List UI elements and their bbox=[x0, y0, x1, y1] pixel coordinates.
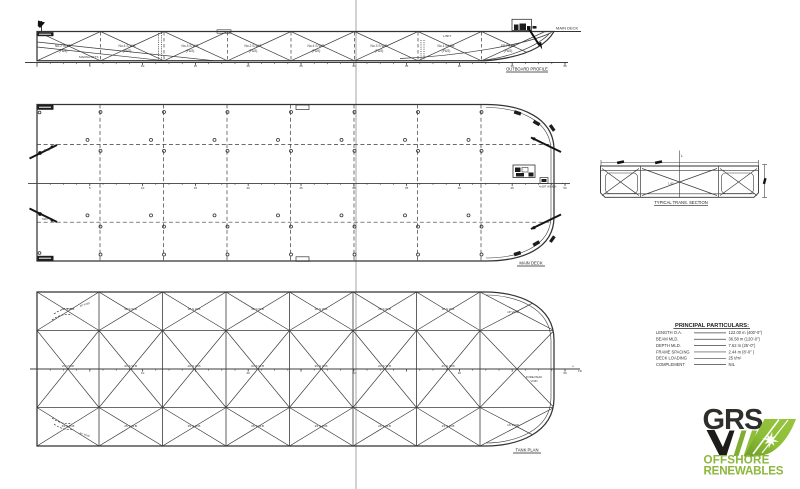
svg-text:2S S.W.B: 2S S.W.B bbox=[378, 424, 391, 428]
svg-text:2P S.W.B: 2P S.W.B bbox=[378, 307, 391, 311]
svg-text:COMPLEMENT: COMPLEMENT bbox=[656, 362, 685, 367]
svg-text:SMIT: SMIT bbox=[42, 217, 49, 221]
svg-text:1S VOID: 1S VOID bbox=[507, 423, 520, 427]
svg-text:No.2 VOID: No.2 VOID bbox=[55, 44, 72, 48]
svg-text:40: 40 bbox=[458, 371, 462, 375]
svg-text:20: 20 bbox=[247, 371, 251, 375]
svg-text:DECK LOADING: DECK LOADING bbox=[656, 356, 687, 361]
svg-text:(P&S): (P&S) bbox=[442, 49, 451, 53]
svg-text:MAIN DECK: MAIN DECK bbox=[519, 261, 542, 266]
svg-text:(P&S): (P&S) bbox=[123, 49, 132, 53]
svg-text:1.83: 1.83 bbox=[668, 182, 674, 186]
svg-text:36.58 m (120'-0"): 36.58 m (120'-0") bbox=[729, 337, 761, 342]
svg-text:1P S.W.B: 1P S.W.B bbox=[442, 307, 455, 311]
svg-text:3P S.W.B: 3P S.W.B bbox=[251, 307, 264, 311]
svg-text:3C S.W.B: 3C S.W.B bbox=[314, 364, 327, 368]
svg-text:DEPTH MLD.: DEPTH MLD. bbox=[656, 343, 681, 348]
svg-text:20: 20 bbox=[247, 186, 251, 190]
svg-text:45: 45 bbox=[511, 186, 515, 190]
svg-text:SMIT: SMIT bbox=[44, 148, 51, 152]
svg-text:7.62 m (25'-0"): 7.62 m (25'-0") bbox=[729, 343, 756, 348]
svg-text:15: 15 bbox=[194, 64, 198, 68]
svg-text:(P&S): (P&S) bbox=[375, 49, 384, 53]
svg-text:L: L bbox=[681, 154, 683, 158]
svg-text:No.3 S.W.B: No.3 S.W.B bbox=[370, 44, 388, 48]
svg-text:4C S.W.B: 4C S.W.B bbox=[124, 364, 137, 368]
svg-text:No.1 S.W.B: No.1 S.W.B bbox=[437, 44, 455, 48]
svg-text:25: 25 bbox=[299, 186, 303, 190]
svg-text:122.00 m (400'-0"): 122.00 m (400'-0") bbox=[729, 330, 763, 335]
svg-text:30: 30 bbox=[352, 64, 356, 68]
svg-text:MARSH BKTS: MARSH BKTS bbox=[79, 55, 99, 59]
svg-text:1S S.W.B: 1S S.W.B bbox=[442, 424, 455, 428]
svg-text:FRAME SPACING: FRAME SPACING bbox=[656, 349, 690, 354]
svg-text:3C S.W.B: 3C S.W.B bbox=[251, 364, 264, 368]
svg-text:35: 35 bbox=[405, 64, 409, 68]
svg-text:TANK PLAN: TANK PLAN bbox=[516, 448, 539, 453]
svg-text:(P&S): (P&S) bbox=[249, 49, 258, 53]
svg-text:4x28T WINCH: 4x28T WINCH bbox=[539, 185, 556, 189]
svg-text:20: 20 bbox=[247, 64, 251, 68]
svg-text:FR PEAK: FR PEAK bbox=[501, 44, 516, 48]
svg-text:4S S.W.B: 4S S.W.B bbox=[62, 424, 75, 428]
svg-text:3S S.W.B: 3S S.W.B bbox=[251, 424, 264, 428]
svg-text:2C S.W.B: 2C S.W.B bbox=[378, 364, 391, 368]
svg-text:25 t/m²: 25 t/m² bbox=[729, 356, 742, 361]
svg-text:(P&S): (P&S) bbox=[186, 49, 195, 53]
svg-text:1P VOID: 1P VOID bbox=[507, 310, 520, 314]
svg-text:No.4 S.W.B: No.4 S.W.B bbox=[118, 44, 136, 48]
svg-text:10: 10 bbox=[141, 371, 145, 375]
svg-text:RENEWABLES: RENEWABLES bbox=[704, 465, 784, 478]
svg-text:2P S.W.B: 2P S.W.B bbox=[315, 307, 328, 311]
svg-text:10: 10 bbox=[141, 64, 145, 68]
svg-text:30: 30 bbox=[352, 371, 356, 375]
svg-text:(P&S): (P&S) bbox=[59, 49, 68, 53]
svg-text:OUTBOARD PROFILE: OUTBOARD PROFILE bbox=[506, 67, 548, 72]
svg-text:No.3 S.W.B: No.3 S.W.B bbox=[181, 44, 199, 48]
svg-text:2S S.W.B: 2S S.W.B bbox=[315, 424, 328, 428]
svg-text:NIL: NIL bbox=[729, 362, 736, 367]
svg-text:LENGTH O.A.: LENGTH O.A. bbox=[656, 330, 682, 335]
svg-text:(P&S): (P&S) bbox=[312, 49, 321, 53]
svg-text:30: 30 bbox=[352, 186, 356, 190]
svg-text:50: 50 bbox=[563, 186, 567, 190]
svg-text:2.44 m (8'-0" ): 2.44 m (8'-0" ) bbox=[729, 349, 755, 354]
svg-text:PRINCIPAL PARTICULARS:: PRINCIPAL PARTICULARS: bbox=[675, 323, 749, 329]
svg-text:4S S.W.B: 4S S.W.B bbox=[124, 424, 137, 428]
svg-text:4C S.W.B: 4C S.W.B bbox=[187, 364, 200, 368]
svg-text:3P S.W.B: 3P S.W.B bbox=[188, 307, 201, 311]
svg-text:40: 40 bbox=[458, 64, 462, 68]
svg-text:40: 40 bbox=[458, 186, 462, 190]
svg-text:L.BKT: L.BKT bbox=[443, 34, 452, 38]
svg-text:35: 35 bbox=[405, 186, 409, 190]
svg-text:No.4 S.W.B: No.4 S.W.B bbox=[307, 44, 325, 48]
svg-text:3S S.W.B: 3S S.W.B bbox=[188, 424, 201, 428]
svg-text:2C S.W.B: 2C S.W.B bbox=[441, 364, 454, 368]
svg-text:MAIN DECK: MAIN DECK bbox=[556, 26, 579, 31]
svg-text:FR: FR bbox=[578, 369, 582, 373]
svg-text:BEAM MLD.: BEAM MLD. bbox=[656, 337, 679, 342]
svg-text:No.2 S.W.B: No.2 S.W.B bbox=[244, 44, 262, 48]
svg-text:4P S.W.B: 4P S.W.B bbox=[124, 307, 137, 311]
svg-text:50: 50 bbox=[563, 371, 567, 375]
svg-text:50: 50 bbox=[563, 64, 567, 68]
svg-text:VOID: VOID bbox=[530, 379, 537, 383]
svg-text:+: + bbox=[562, 181, 564, 185]
svg-text:10: 10 bbox=[141, 186, 145, 190]
svg-text:+: + bbox=[572, 365, 574, 369]
svg-text:25: 25 bbox=[299, 64, 303, 68]
svg-text:(P&S): (P&S) bbox=[504, 49, 513, 53]
svg-text:2C VOID: 2C VOID bbox=[62, 364, 75, 368]
svg-text:TYPICAL TRANS. SECTION: TYPICAL TRANS. SECTION bbox=[654, 200, 708, 205]
svg-text:15: 15 bbox=[194, 186, 198, 190]
